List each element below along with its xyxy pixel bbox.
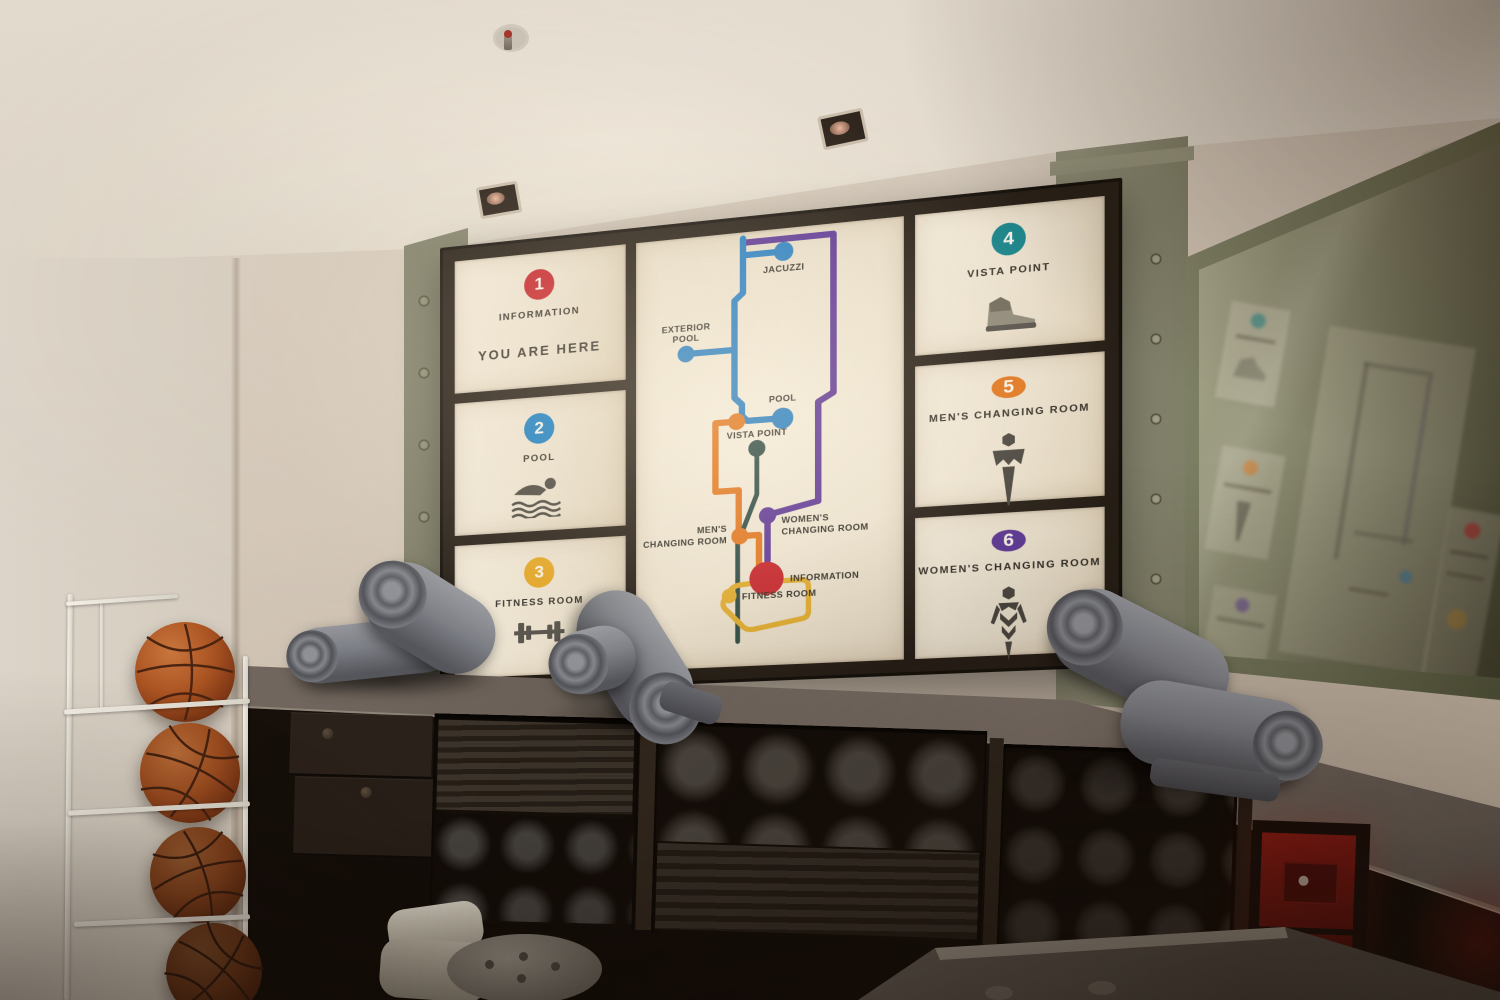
drawer	[289, 712, 433, 779]
sign-panel-mens-changing-room: 5 MEN'S CHANGING ROOM	[915, 351, 1105, 507]
panel-label: POOL	[523, 452, 555, 467]
panel-label: VISTA POINT	[967, 261, 1050, 282]
map-label-mens: MEN'S	[697, 523, 727, 535]
number-badge: 1	[524, 268, 554, 301]
drawer-knob	[361, 787, 372, 798]
drawer-knob	[322, 728, 333, 739]
map-label-exterior-pool: POOL	[673, 332, 700, 345]
male-figure-icon	[979, 429, 1038, 514]
hiking-boot-icon	[973, 286, 1044, 341]
panel-label: MEN'S CHANGING ROOM	[929, 402, 1090, 427]
sign-panel-vista-point: 4 VISTA POINT	[915, 196, 1105, 356]
sign-panel-pool: 2 POOL	[455, 390, 626, 536]
stool	[447, 934, 602, 1000]
fire-sprinkler-icon	[493, 24, 525, 56]
red-cabinet-door	[1259, 832, 1356, 929]
map-label-jacuzzi: JACUZZI	[763, 261, 805, 276]
map-label-pool: POOL	[769, 392, 797, 405]
station-mens-changing	[731, 527, 748, 545]
map-label-information: INFORMATION	[790, 569, 859, 583]
sign-panel-information: 1 INFORMATION YOU ARE HERE	[455, 244, 626, 394]
panel-label: FITNESS ROOM	[495, 594, 583, 611]
scene: 1 INFORMATION YOU ARE HERE 2 POOL 3 FITN…	[0, 0, 1500, 1000]
folded-towels	[655, 843, 980, 939]
station-pool-orange	[728, 413, 745, 431]
station-exterior-pool	[678, 345, 695, 363]
number-badge: 5	[992, 375, 1026, 399]
wayfinding-signboard: 1 INFORMATION YOU ARE HERE 2 POOL 3 FITN…	[440, 178, 1122, 694]
panel-label: INFORMATION	[499, 305, 580, 325]
towel-shelf	[429, 713, 639, 928]
cart-knob	[985, 986, 1013, 1000]
sign-panel-map: JACUZZI EXTERIOR POOL POOL VISTA POINT M…	[636, 216, 904, 671]
cart-knob	[1088, 981, 1116, 995]
station-fitness-room	[722, 588, 737, 603]
number-badge: 3	[524, 556, 554, 588]
towel-shelf	[651, 721, 987, 943]
teal-route	[738, 457, 757, 642]
station-vista-point	[748, 439, 765, 457]
swimmer-icon	[506, 473, 572, 525]
female-figure-icon	[979, 583, 1038, 669]
wayfinding-map: JACUZZI EXTERIOR POOL POOL VISTA POINT M…	[636, 216, 904, 671]
station-jacuzzi	[774, 241, 793, 262]
number-badge: 2	[524, 412, 554, 445]
rolled-towels	[656, 725, 985, 851]
station-womens-changing	[759, 507, 776, 525]
panel-label: WOMEN'S CHANGING ROOM	[918, 556, 1101, 579]
rack-rail	[100, 600, 103, 710]
basketball	[150, 827, 246, 923]
map-label-mens: CHANGING ROOM	[643, 535, 727, 550]
mirror	[1185, 120, 1500, 700]
number-badge: 4	[992, 221, 1026, 257]
number-badge: 6	[992, 529, 1026, 553]
you-are-here-label: YOU ARE HERE	[478, 338, 601, 364]
drawer	[293, 776, 443, 859]
